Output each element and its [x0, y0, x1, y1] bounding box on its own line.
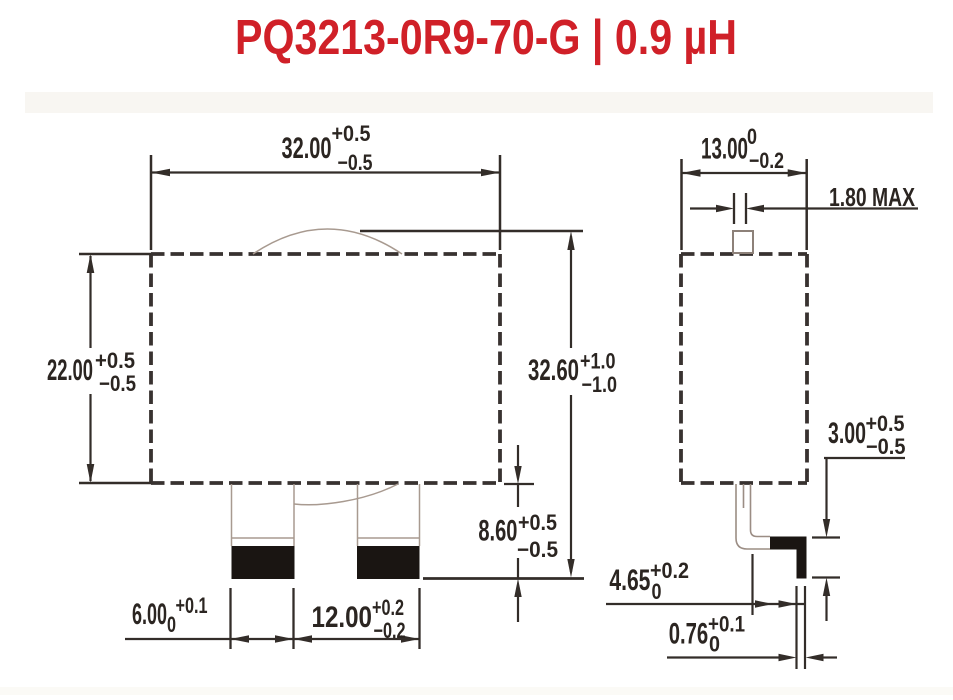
- svg-text:22.00: 22.00: [47, 354, 93, 387]
- svg-text:−0.2: −0.2: [749, 148, 784, 173]
- svg-text:8.60: 8.60: [478, 515, 517, 548]
- svg-text:+0.5: +0.5: [95, 348, 135, 373]
- svg-text:0: 0: [747, 124, 757, 149]
- svg-text:−0.5: −0.5: [99, 371, 136, 396]
- svg-text:+0.2: +0.2: [372, 595, 404, 620]
- svg-text:−1.0: −1.0: [582, 372, 618, 397]
- svg-text:4.65: 4.65: [609, 564, 650, 597]
- svg-text:−0.5: −0.5: [866, 434, 906, 459]
- svg-text:3.00: 3.00: [828, 417, 866, 450]
- svg-text:0.76: 0.76: [669, 618, 709, 651]
- svg-text:0: 0: [709, 632, 720, 657]
- svg-text:−0.2: −0.2: [374, 618, 406, 643]
- svg-text:+0.5: +0.5: [866, 411, 905, 436]
- svg-text:−0.5: −0.5: [338, 150, 373, 175]
- svg-text:12.00: 12.00: [312, 601, 373, 634]
- svg-text:1.80 MAX: 1.80 MAX: [829, 182, 915, 212]
- svg-text:−0.5: −0.5: [517, 537, 558, 562]
- svg-text:32.00: 32.00: [282, 132, 332, 165]
- svg-text:+0.5: +0.5: [518, 510, 557, 535]
- svg-text:+1.0: +1.0: [580, 349, 616, 374]
- svg-text:+0.5: +0.5: [332, 121, 371, 146]
- svg-text:6.00: 6.00: [132, 598, 167, 631]
- svg-text:32.60: 32.60: [528, 354, 579, 387]
- svg-text:+0.1: +0.1: [176, 593, 208, 618]
- svg-text:0: 0: [652, 579, 662, 604]
- svg-text:13.00: 13.00: [701, 133, 748, 166]
- svg-text:PQ3213-0R9-70-G | 0.9 µH: PQ3213-0R9-70-G | 0.9 µH: [235, 11, 737, 65]
